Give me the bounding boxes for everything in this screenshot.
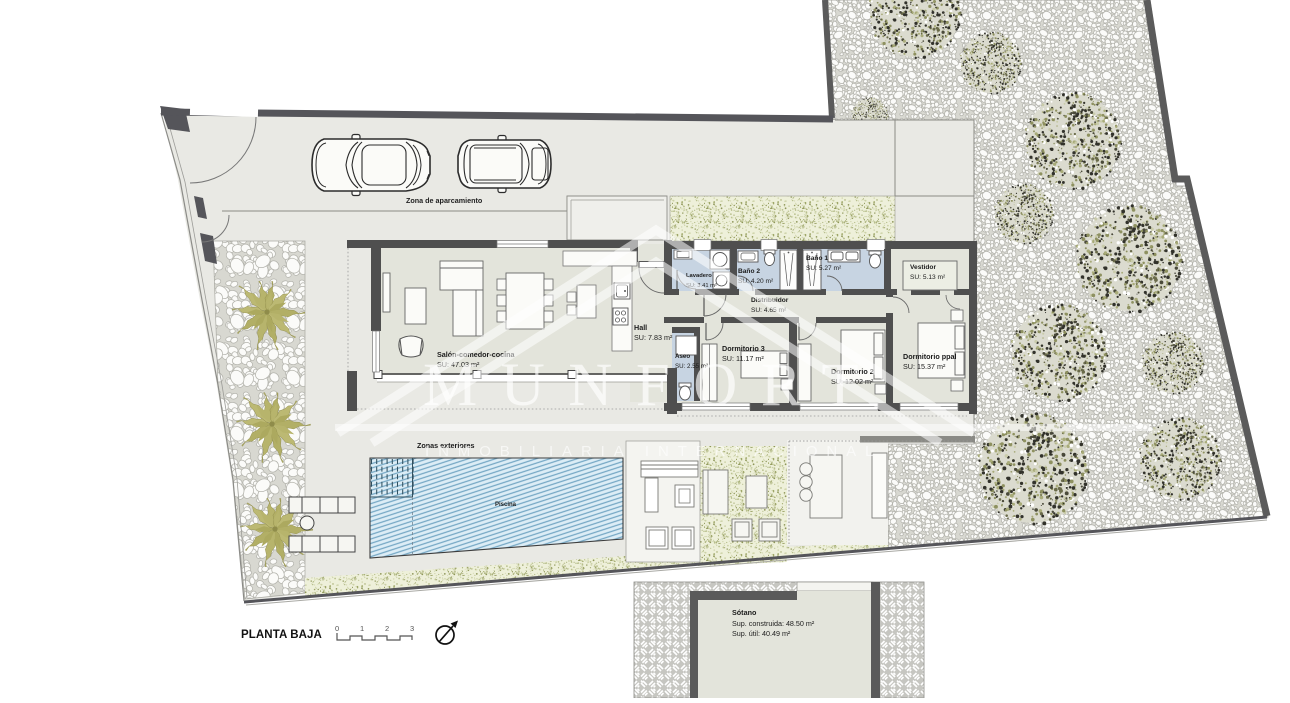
svg-text:Sótano: Sótano (732, 608, 757, 617)
svg-text:SU: 15.37 m²: SU: 15.37 m² (903, 362, 946, 371)
svg-text:Sup. construida: 48.50 m²: Sup. construida: 48.50 m² (732, 619, 815, 628)
svg-text:3: 3 (410, 624, 414, 633)
svg-text:SU: 5.13 m²: SU: 5.13 m² (910, 274, 946, 281)
svg-text:SU: 5.27 m²: SU: 5.27 m² (806, 265, 842, 272)
svg-text:MUNFORT: MUNFORT (423, 352, 882, 419)
svg-text:Vestidor: Vestidor (910, 264, 936, 271)
svg-text:Lavadero: Lavadero (686, 273, 712, 279)
svg-text:Baño 1: Baño 1 (806, 255, 828, 262)
svg-text:INMOBILIARIA INTERNACIONAL: INMOBILIARIA INTERNACIONAL (425, 443, 882, 460)
svg-text:Dormitorio ppal: Dormitorio ppal (903, 352, 957, 361)
svg-text:Baño 2: Baño 2 (738, 268, 760, 275)
svg-text:SU: 7.83 m²: SU: 7.83 m² (634, 333, 673, 342)
svg-text:PLANTA BAJA: PLANTA BAJA (241, 629, 322, 641)
svg-text:2: 2 (385, 624, 389, 633)
svg-text:Piscina: Piscina (495, 502, 517, 508)
svg-text:Hall: Hall (634, 323, 647, 332)
svg-text:1: 1 (360, 624, 364, 633)
svg-text:0: 0 (335, 624, 339, 633)
svg-text:Zona de aparcamiento: Zona de aparcamiento (406, 196, 483, 205)
svg-text:Sup. útil: 40.49 m²: Sup. útil: 40.49 m² (732, 629, 791, 638)
